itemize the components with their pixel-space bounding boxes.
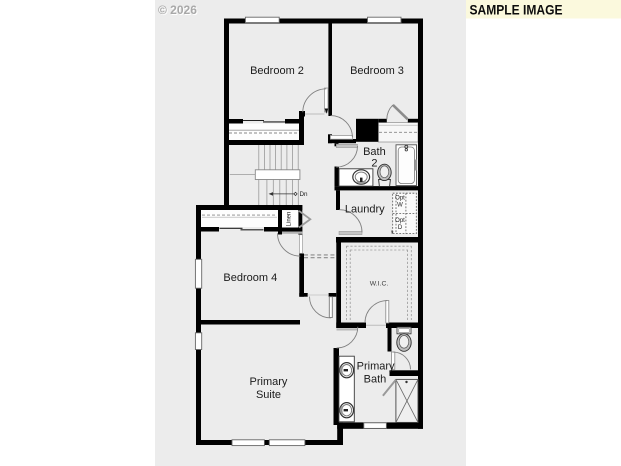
svg-text:SAMPLE IMAGE: SAMPLE IMAGE bbox=[470, 1, 563, 17]
svg-text:Opt: Opt bbox=[395, 218, 405, 224]
svg-text:2: 2 bbox=[371, 157, 377, 169]
svg-text:Primary: Primary bbox=[357, 361, 395, 373]
svg-text:W: W bbox=[397, 202, 403, 208]
svg-text:Dn: Dn bbox=[299, 191, 308, 198]
svg-text:D: D bbox=[398, 225, 403, 231]
svg-text:Suite: Suite bbox=[256, 389, 281, 401]
svg-text:Bedroom 4: Bedroom 4 bbox=[223, 272, 277, 284]
svg-text:Primary: Primary bbox=[250, 376, 288, 388]
svg-text:Opt: Opt bbox=[395, 195, 405, 201]
svg-text:Laundry: Laundry bbox=[345, 204, 385, 216]
svg-text:Linen: Linen bbox=[287, 212, 293, 227]
svg-text:W.I.C.: W.I.C. bbox=[370, 280, 389, 287]
svg-text:Bedroom 2: Bedroom 2 bbox=[250, 65, 304, 77]
svg-text:© 2026: © 2026 bbox=[158, 3, 197, 17]
svg-text:Bath: Bath bbox=[364, 374, 387, 386]
svg-text:Bedroom 3: Bedroom 3 bbox=[350, 65, 404, 77]
